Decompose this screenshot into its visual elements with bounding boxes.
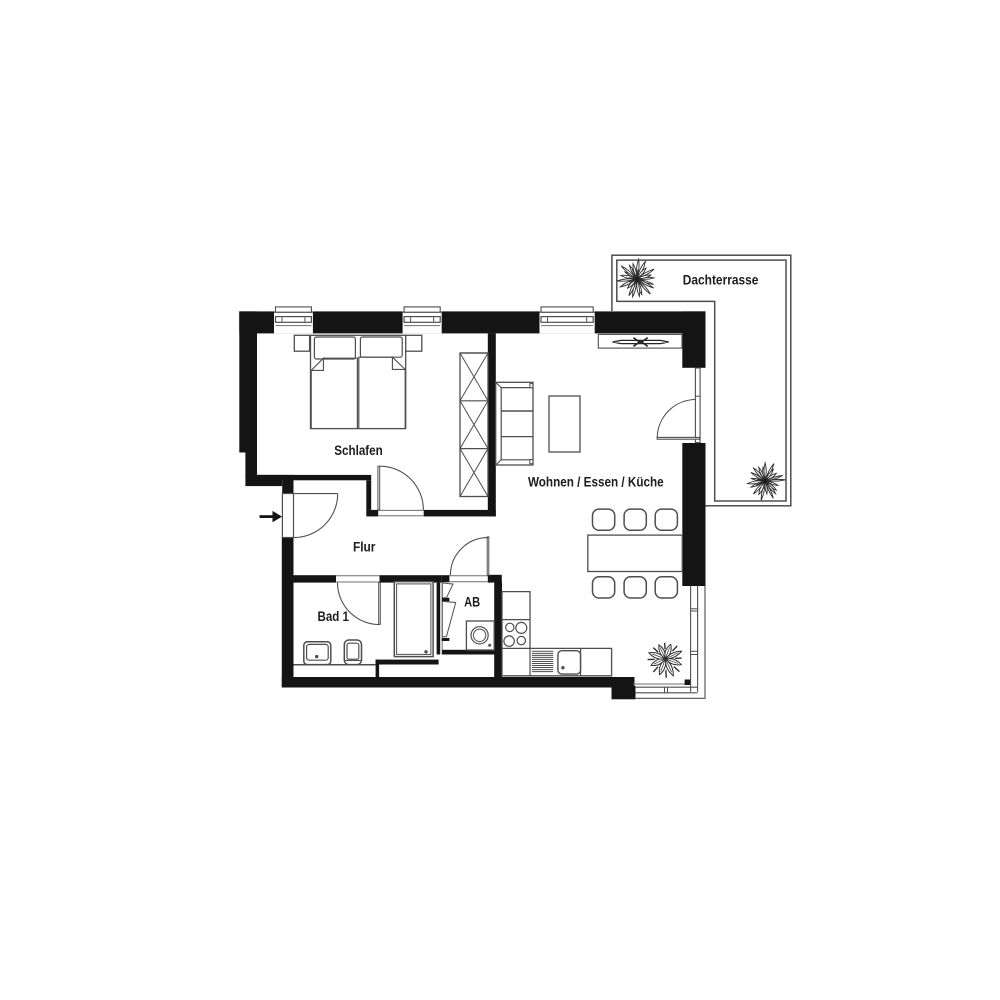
svg-text:Bad 1: Bad 1 bbox=[318, 608, 350, 624]
svg-text:Flur: Flur bbox=[353, 538, 376, 554]
svg-text:Wohnen / Essen / Küche: Wohnen / Essen / Küche bbox=[528, 473, 664, 489]
svg-text:Dachterrasse: Dachterrasse bbox=[683, 272, 759, 288]
svg-text:AB: AB bbox=[464, 593, 480, 609]
svg-text:Schlafen: Schlafen bbox=[334, 442, 382, 458]
